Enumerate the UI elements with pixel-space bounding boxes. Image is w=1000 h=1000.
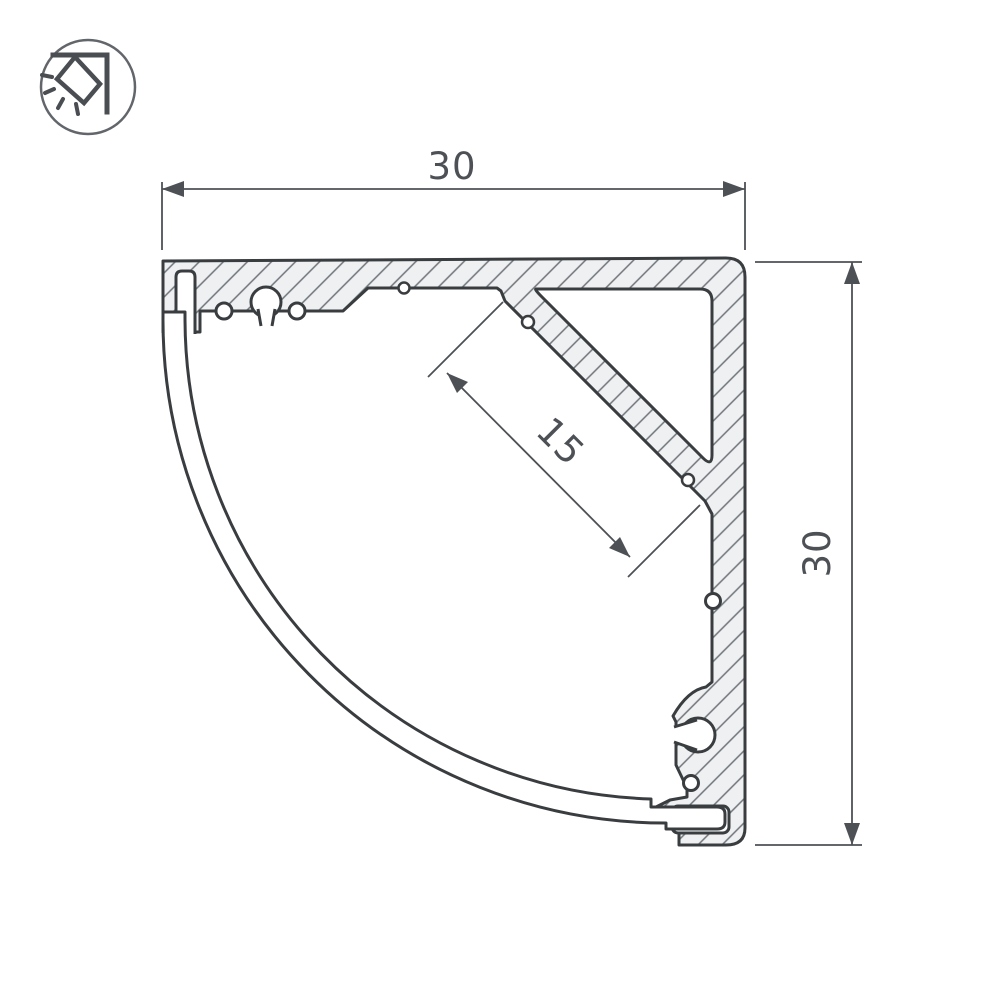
corner-light-icon: [41, 40, 135, 134]
dimension-height-value: 30: [796, 528, 839, 577]
wall-notch: [706, 594, 721, 609]
dimension-width-value: 30: [427, 145, 476, 188]
led-shelf-ridge: [522, 316, 534, 328]
extension-line: [628, 505, 700, 577]
extension-line: [428, 302, 503, 377]
arrowhead-right: [723, 181, 745, 197]
wall-notch: [684, 776, 699, 791]
rib-notch: [216, 303, 232, 319]
arrowhead-top: [844, 262, 860, 284]
arrowhead-left: [162, 181, 184, 197]
dimension-width: 30: [162, 145, 745, 250]
rib-notch: [289, 303, 305, 319]
profile-drawing-svg: 30 30 15: [0, 0, 1000, 1000]
rib-notch-small: [399, 283, 410, 294]
diffuser-cover-arc: [163, 312, 725, 829]
led-shelf-ridge: [682, 474, 694, 486]
arrowhead-bottom: [844, 823, 860, 845]
technical-drawing-page: 30 30 15: [0, 0, 1000, 1000]
icon-lamp-body: [57, 57, 100, 103]
dimension-height: 30: [755, 262, 862, 845]
screw-boss-top: [251, 287, 281, 326]
